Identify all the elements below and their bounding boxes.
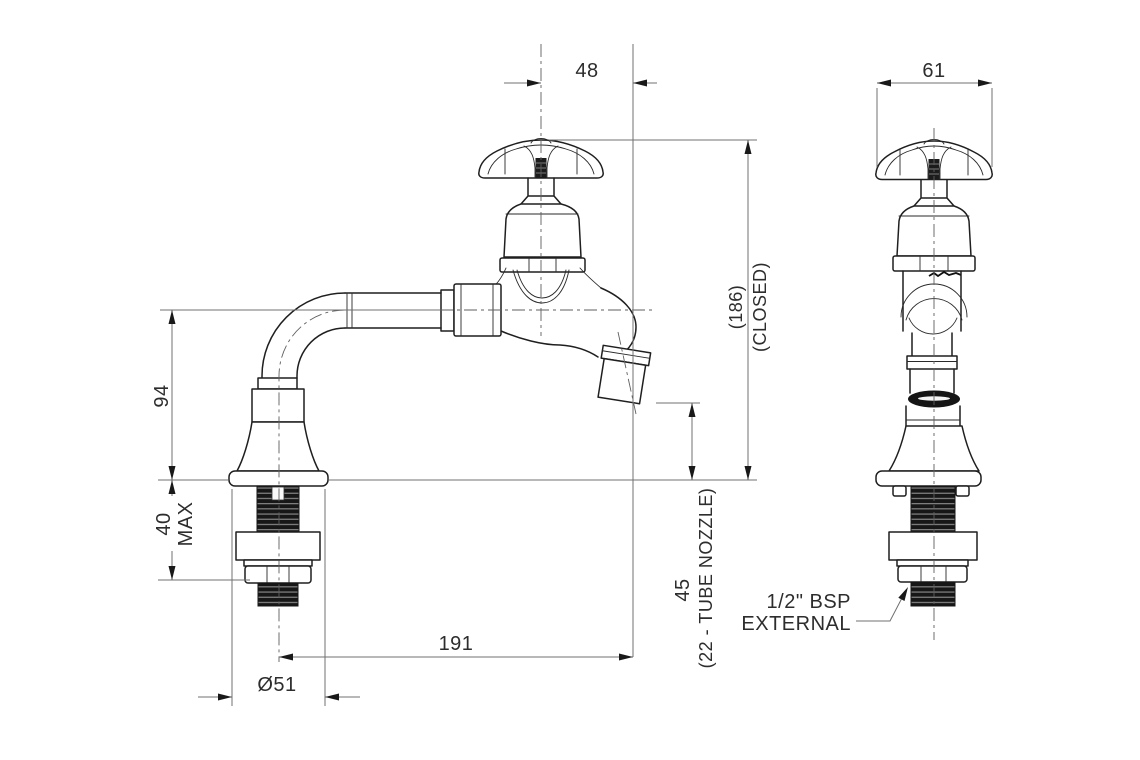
dim-51-label: Ø51: [257, 674, 296, 696]
shank-thread-lower: [911, 582, 955, 606]
dim-191: 191: [279, 633, 633, 661]
shank-thread-upper: [911, 486, 955, 532]
bsp-label-line1: 1/2" BSP: [767, 591, 851, 613]
dim-61: 61: [877, 60, 992, 87]
drawing-canvas: 48 61 94 40 MAX Ø51: [0, 0, 1140, 760]
elbow-inner-arc: [297, 328, 345, 378]
base-side: [229, 378, 328, 606]
dim-186-label: (186): [726, 285, 746, 330]
backnut: [236, 532, 320, 560]
nozzle-side: [595, 345, 651, 404]
dim-191-label: 191: [439, 633, 474, 655]
dimensions: 48 61 94 40 MAX Ø51: [151, 44, 992, 706]
leader-line: [856, 596, 903, 621]
hex-nut: [245, 566, 311, 583]
dim-186: (186) (CLOSED): [726, 140, 770, 480]
base-front: [876, 406, 981, 606]
base-flange: [876, 471, 981, 486]
base-flange: [229, 471, 328, 486]
thread-callout: 1/2" BSP EXTERNAL: [741, 587, 908, 635]
tap-technical-drawing: 48 61 94 40 MAX Ø51: [0, 0, 1140, 760]
dim-45-note: (22 - TUBE NOZZLE): [696, 488, 716, 669]
elbow-outer-arc: [262, 293, 345, 378]
spout-lower-curve: [501, 331, 598, 357]
shank-thread-lower: [258, 583, 298, 606]
backnut: [889, 532, 977, 560]
dim-40-max: 40 MAX: [153, 480, 197, 580]
base-cone: [237, 422, 319, 471]
dim-48: 48: [504, 60, 657, 87]
nozzle-tube: [598, 359, 646, 404]
dim-45-label: 45: [672, 578, 694, 601]
dim-94-label: 94: [151, 384, 173, 407]
tap-body-side: [493, 268, 636, 357]
dim-48-label: 48: [575, 60, 598, 82]
dim-94: 94: [151, 310, 176, 480]
dim-51: Ø51: [198, 674, 360, 701]
dim-40-note: MAX: [175, 502, 197, 547]
dim-45: 45 (22 - TUBE NOZZLE): [672, 403, 716, 668]
bonnet-side: [500, 178, 585, 272]
bonnet-outline: [504, 204, 581, 257]
dim-186-note: (CLOSED): [750, 262, 770, 352]
inlet-pipe-elbow: [262, 293, 441, 378]
side-view: [229, 139, 651, 607]
hex-nut: [898, 566, 967, 582]
bsp-label-line2: EXTERNAL: [741, 613, 851, 635]
dim-40-label: 40: [153, 512, 175, 535]
spout-outer-curve: [601, 288, 636, 355]
leader-arrowhead: [898, 587, 908, 601]
dim-61-label: 61: [922, 60, 945, 82]
